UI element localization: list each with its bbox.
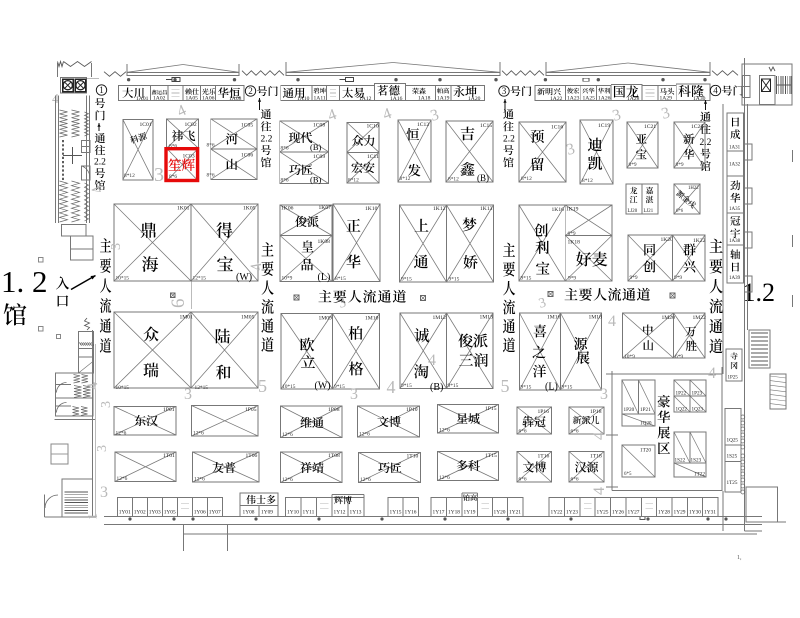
svg-text:1A08: 1A08 <box>229 96 242 102</box>
svg-text:12*6: 12*6 <box>193 431 204 437</box>
svg-text:1Y31: 1Y31 <box>704 510 716 516</box>
svg-text:8*12: 8*12 <box>124 173 135 179</box>
svg-text:2.2: 2.2 <box>503 135 515 145</box>
svg-text:1P20: 1P20 <box>624 407 635 413</box>
svg-text:8*12: 8*12 <box>448 177 459 183</box>
svg-text:1Y23: 1Y23 <box>566 510 578 516</box>
svg-text:1T08: 1T08 <box>328 453 340 459</box>
svg-text:8*15: 8*15 <box>335 276 346 282</box>
svg-text:6*5: 6*5 <box>624 472 632 477</box>
svg-text:1T22: 1T22 <box>694 472 705 478</box>
svg-text:(L): (L) <box>318 272 331 283</box>
svg-text:1A25: 1A25 <box>583 96 596 102</box>
svg-text:1A28: 1A28 <box>627 96 640 102</box>
svg-text:3: 3 <box>350 386 358 403</box>
svg-text:1M05: 1M05 <box>241 315 255 321</box>
svg-text:1A20: 1A20 <box>468 96 481 102</box>
svg-text:1P18: 1P18 <box>590 409 602 415</box>
svg-text:3: 3 <box>184 386 192 403</box>
svg-text:12*6: 12*6 <box>360 477 371 483</box>
svg-text:1Y12: 1Y12 <box>334 510 346 516</box>
svg-text:(B): (B) <box>477 173 489 183</box>
svg-text:8*6: 8*6 <box>207 173 215 179</box>
svg-text:1Y15: 1Y15 <box>390 510 402 516</box>
svg-text:1: 1 <box>86 513 101 520</box>
svg-text:8*12: 8*12 <box>400 176 411 182</box>
svg-text:1A38: 1A38 <box>729 239 741 244</box>
svg-text:1K10: 1K10 <box>365 206 378 212</box>
svg-text:8*12: 8*12 <box>348 178 359 184</box>
svg-text:1K01: 1K01 <box>177 206 190 212</box>
svg-text:12*6: 12*6 <box>359 432 370 438</box>
svg-text:12*6: 12*6 <box>116 431 127 437</box>
svg-text:1C21: 1C21 <box>644 124 656 130</box>
svg-text:12*15: 12*15 <box>195 385 209 391</box>
svg-text:4: 4 <box>591 432 608 440</box>
svg-text:12*6: 12*6 <box>439 475 450 481</box>
svg-text:1Y16: 1Y16 <box>405 510 417 516</box>
svg-text:10*15: 10*15 <box>282 384 296 390</box>
svg-text:3: 3 <box>600 386 608 403</box>
svg-text:1C09: 1C09 <box>313 154 325 160</box>
svg-text:1K12: 1K12 <box>433 206 446 212</box>
svg-text:1A22: 1A22 <box>550 96 563 102</box>
svg-text:1T10: 1T10 <box>407 454 419 460</box>
svg-text:3: 3 <box>154 164 164 186</box>
svg-text:9*15: 9*15 <box>521 276 532 282</box>
svg-text:1A30: 1A30 <box>693 96 706 102</box>
svg-text:8*12: 8*12 <box>582 178 593 184</box>
svg-text:1C15: 1C15 <box>480 123 492 129</box>
svg-text:10*15: 10*15 <box>116 276 130 282</box>
svg-text:6*6: 6*6 <box>676 209 684 214</box>
svg-text:6*6: 6*6 <box>519 477 527 483</box>
svg-text:1T20: 1T20 <box>640 448 651 454</box>
svg-text:2.2: 2.2 <box>94 158 106 168</box>
svg-text:(W): (W) <box>315 381 331 392</box>
svg-text:1P08: 1P08 <box>328 407 340 413</box>
svg-text:1: 1 <box>99 85 104 95</box>
svg-text:1A23: 1A23 <box>567 96 580 102</box>
svg-text:4: 4 <box>708 365 716 382</box>
svg-text:1M16: 1M16 <box>547 315 561 321</box>
svg-text:1Q25: 1Q25 <box>727 438 739 444</box>
svg-text:1K19: 1K19 <box>566 207 579 213</box>
svg-text:1. 2: 1. 2 <box>1 264 48 299</box>
svg-text:1A11: 1A11 <box>314 96 326 102</box>
svg-text:1T06: 1T06 <box>246 453 258 459</box>
svg-text:1Y20: 1Y20 <box>494 510 506 516</box>
svg-text:1T18: 1T18 <box>590 454 602 460</box>
svg-text:12*15: 12*15 <box>193 276 207 282</box>
svg-text:(L): (L) <box>545 382 558 393</box>
svg-text:1A01: 1A01 <box>136 96 149 102</box>
svg-text:9*15: 9*15 <box>448 383 459 389</box>
svg-text:1P05: 1P05 <box>245 407 257 413</box>
svg-text:9*15: 9*15 <box>562 385 573 391</box>
svg-text:10*9: 10*9 <box>282 276 293 282</box>
svg-text:1T25: 1T25 <box>727 480 738 486</box>
svg-text:3: 3 <box>109 243 124 250</box>
svg-text:1A19: 1A19 <box>437 96 450 102</box>
svg-text:1Y28: 1Y28 <box>658 510 670 516</box>
svg-text:1C10: 1C10 <box>367 124 379 130</box>
svg-text:1M10: 1M10 <box>365 316 379 322</box>
svg-text:1Y29: 1Y29 <box>674 510 686 516</box>
svg-text:1H22: 1H22 <box>688 186 699 191</box>
svg-text:2.2: 2.2 <box>700 138 712 148</box>
svg-text:1M18: 1M18 <box>589 315 603 321</box>
svg-text:9*15: 9*15 <box>401 383 412 389</box>
svg-text:12*6: 12*6 <box>439 428 450 434</box>
svg-text:6*6: 6*6 <box>519 429 527 435</box>
svg-text:1C11: 1C11 <box>367 154 379 160</box>
svg-text:2: 2 <box>248 86 253 96</box>
svg-text:1C19: 1C19 <box>598 123 610 129</box>
svg-text:1Y01: 1Y01 <box>119 510 131 516</box>
svg-text:1Y02: 1Y02 <box>134 510 146 516</box>
svg-text:1Y11: 1Y11 <box>303 510 315 516</box>
svg-text:1P15: 1P15 <box>485 406 497 412</box>
svg-text:12*6: 12*6 <box>282 477 293 483</box>
svg-text:1Y30: 1Y30 <box>689 510 701 516</box>
svg-text:1C12: 1C12 <box>417 122 429 128</box>
svg-text:1Q20: 1Q20 <box>640 421 652 427</box>
svg-text:1A35: 1A35 <box>729 207 741 212</box>
svg-text:1C02: 1C02 <box>185 122 197 128</box>
svg-text:2.2: 2.2 <box>261 135 273 145</box>
svg-text:1T16: 1T16 <box>538 454 550 460</box>
svg-text:1P23: 1P23 <box>692 391 703 397</box>
svg-text:1Y06: 1Y06 <box>194 510 206 516</box>
svg-text:6*9: 6*9 <box>568 231 576 237</box>
svg-text:1Y18: 1Y18 <box>448 510 460 516</box>
svg-text:1A05: 1A05 <box>186 96 199 102</box>
svg-text:3: 3 <box>99 401 114 408</box>
svg-text:1A02: 1A02 <box>153 96 166 102</box>
svg-text:LJ20: LJ20 <box>628 209 638 214</box>
svg-text:1Y13: 1Y13 <box>350 510 362 516</box>
svg-text:(B): (B) <box>310 142 322 152</box>
svg-text:1K06: 1K06 <box>281 206 294 212</box>
svg-text:1M12: 1M12 <box>433 315 447 321</box>
svg-text:1A18: 1A18 <box>418 96 431 102</box>
svg-text:1M13: 1M13 <box>480 315 494 321</box>
svg-text:1K08: 1K08 <box>318 239 331 245</box>
svg-text:1P16: 1P16 <box>538 409 550 415</box>
svg-text:1K20: 1K20 <box>661 237 674 243</box>
svg-text:8*6: 8*6 <box>169 174 177 180</box>
svg-text:1Q23: 1Q23 <box>692 407 704 413</box>
svg-text:1K18: 1K18 <box>568 240 581 246</box>
svg-text:1C05: 1C05 <box>241 123 253 129</box>
svg-text:1Y17: 1Y17 <box>433 510 445 516</box>
svg-text:1S23: 1S23 <box>691 458 702 464</box>
svg-text:1,: 1, <box>737 555 742 561</box>
svg-text:1Q22: 1Q22 <box>676 407 688 413</box>
svg-text:12*6: 12*6 <box>117 476 128 482</box>
svg-text:1P22: 1P22 <box>676 391 687 397</box>
svg-text:1K16: 1K16 <box>552 207 565 213</box>
svg-text:1Y10: 1Y10 <box>287 510 299 516</box>
svg-text:8*6: 8*6 <box>207 143 215 149</box>
svg-text:(W): (W) <box>236 272 252 283</box>
svg-text:1T01: 1T01 <box>163 453 175 459</box>
svg-text:9*9: 9*9 <box>568 276 576 282</box>
svg-text:1Y22: 1Y22 <box>551 510 563 516</box>
svg-text:6*6: 6*6 <box>571 429 579 435</box>
svg-text:9*15: 9*15 <box>449 277 460 283</box>
svg-text:1K13: 1K13 <box>480 206 493 212</box>
svg-text:9*15: 9*15 <box>521 385 532 391</box>
svg-text:1M22: 1M22 <box>693 315 707 321</box>
svg-text:1P21: 1P21 <box>640 407 651 413</box>
svg-text:1A10: 1A10 <box>297 96 310 102</box>
svg-text:1K22: 1K22 <box>693 238 706 244</box>
svg-text:1A32: 1A32 <box>729 163 741 168</box>
svg-text:1C16: 1C16 <box>551 125 563 131</box>
svg-text:3: 3 <box>95 445 110 452</box>
svg-text:1Y08: 1Y08 <box>243 510 255 516</box>
svg-text:10*15: 10*15 <box>116 385 130 391</box>
svg-text:4: 4 <box>591 487 608 495</box>
svg-text:1P25: 1P25 <box>728 376 739 381</box>
svg-text:1Y25: 1Y25 <box>597 510 609 516</box>
svg-text:1P10: 1P10 <box>406 407 418 413</box>
svg-text:1Y03: 1Y03 <box>149 510 161 516</box>
svg-text:1M09: 1M09 <box>319 316 333 322</box>
svg-text:1S25: 1S25 <box>727 454 738 460</box>
svg-text:8*6: 8*6 <box>281 178 289 184</box>
svg-text:1A31: 1A31 <box>729 146 741 151</box>
svg-text:1A16: 1A16 <box>390 96 403 102</box>
svg-text:1C22: 1C22 <box>691 124 703 130</box>
svg-text:9*15: 9*15 <box>334 384 345 390</box>
svg-text:8*6: 8*6 <box>281 146 289 152</box>
svg-text:1C03: 1C03 <box>183 154 195 160</box>
svg-text:1Y27: 1Y27 <box>628 510 640 516</box>
svg-text:10*9: 10*9 <box>624 354 635 360</box>
svg-text:(B): (B) <box>430 382 443 393</box>
svg-text:1A29: 1A29 <box>660 96 673 102</box>
svg-text:4: 4 <box>713 86 718 96</box>
svg-text:1A26: 1A26 <box>598 96 611 102</box>
svg-text:1S22: 1S22 <box>675 458 686 464</box>
svg-text:3: 3 <box>100 484 108 501</box>
svg-text:3: 3 <box>502 86 507 96</box>
svg-text:1T15: 1T15 <box>485 453 497 459</box>
svg-text:LJ21: LJ21 <box>644 209 654 214</box>
svg-text:1K05: 1K05 <box>243 206 256 212</box>
svg-text:12*6: 12*6 <box>282 432 293 438</box>
svg-text:1A06: 1A06 <box>202 96 215 102</box>
svg-text:8*12: 8*12 <box>521 176 532 182</box>
svg-text:9*15: 9*15 <box>401 277 412 283</box>
svg-text:1A12: 1A12 <box>359 96 372 102</box>
svg-text:4: 4 <box>608 313 616 330</box>
svg-text:6: 6 <box>168 299 189 309</box>
svg-text:6*9: 6*9 <box>675 354 683 360</box>
svg-text:12*6: 12*6 <box>194 477 205 483</box>
svg-text:1C06: 1C06 <box>241 153 253 159</box>
svg-text:1Y21: 1Y21 <box>509 510 521 516</box>
svg-text:1P01: 1P01 <box>163 407 175 413</box>
svg-text:1Y19: 1Y19 <box>464 510 476 516</box>
svg-text:5: 5 <box>258 376 267 396</box>
svg-text:1M20: 1M20 <box>662 315 676 321</box>
svg-text:9*9: 9*9 <box>630 275 638 281</box>
svg-text:1Y07: 1Y07 <box>209 510 221 516</box>
svg-text:9*9: 9*9 <box>674 275 682 281</box>
svg-text:1C08: 1C08 <box>313 123 325 129</box>
svg-text:4: 4 <box>387 377 396 397</box>
svg-text:8*9: 8*9 <box>676 162 684 168</box>
svg-text:5: 5 <box>501 376 510 396</box>
svg-text:1Y09: 1Y09 <box>261 510 273 516</box>
svg-text:8*9: 8*9 <box>629 162 637 168</box>
svg-text:1Y26: 1Y26 <box>612 510 624 516</box>
svg-text:1C01: 1C01 <box>140 122 152 128</box>
svg-text:6*6: 6*6 <box>571 477 579 483</box>
svg-text:(B): (B) <box>310 175 322 185</box>
svg-text:1Y05: 1Y05 <box>164 510 176 516</box>
svg-text:1A39: 1A39 <box>729 276 741 281</box>
svg-text:1K07: 1K07 <box>319 205 332 211</box>
svg-text:4: 4 <box>428 352 436 369</box>
